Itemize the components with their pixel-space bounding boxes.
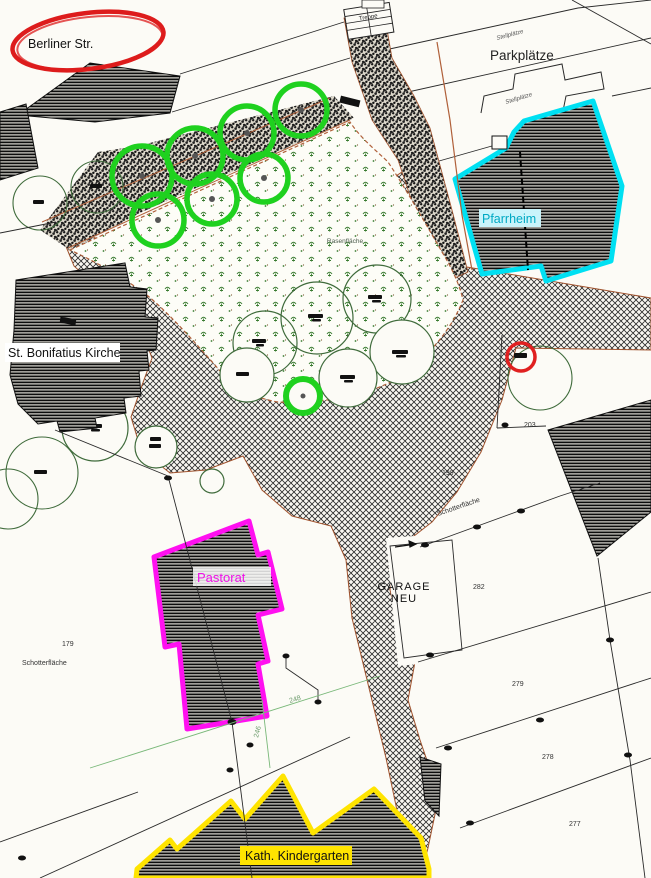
kindergarten-label: Kath. Kindergarten [240,846,352,865]
parcel-278: 278 [542,754,554,761]
stairs-top-box [362,0,384,8]
parcel-199: 199 [442,470,454,477]
street-label: Berliner Str. [28,37,93,51]
kindergarten-label-text: Kath. Kindergarten [245,849,349,863]
garage-label-line2: NEU [391,593,417,605]
parcel-179: 179 [62,641,74,648]
pfarrheim-annex [492,136,507,149]
pfarrheim-label-text: Pfarrheim [482,212,536,226]
parcel-279: 279 [512,681,524,688]
lawn-label: Rasenfläche [327,238,364,245]
parcel-277: 277 [569,821,581,828]
gravel-label-left: Schotterfläche [22,660,67,667]
pfarrheim-label: Pfarrheim [479,209,541,227]
parking-label: Parkplätze [490,48,554,63]
garage-label-line1: GARAGE [377,581,430,593]
church-label-text: St. Bonifatius Kirche [8,346,121,360]
site-plan: Rasenfläche [0,0,651,878]
parcel-203: 203 [524,422,536,429]
site-plan-drawing: Rasenfläche [0,0,651,878]
pastorat-label-text: Pastorat [197,570,246,585]
church-label: St. Bonifatius Kirche [5,343,121,362]
parcel-282: 282 [473,584,485,591]
pastorat-label: Pastorat [193,567,271,586]
